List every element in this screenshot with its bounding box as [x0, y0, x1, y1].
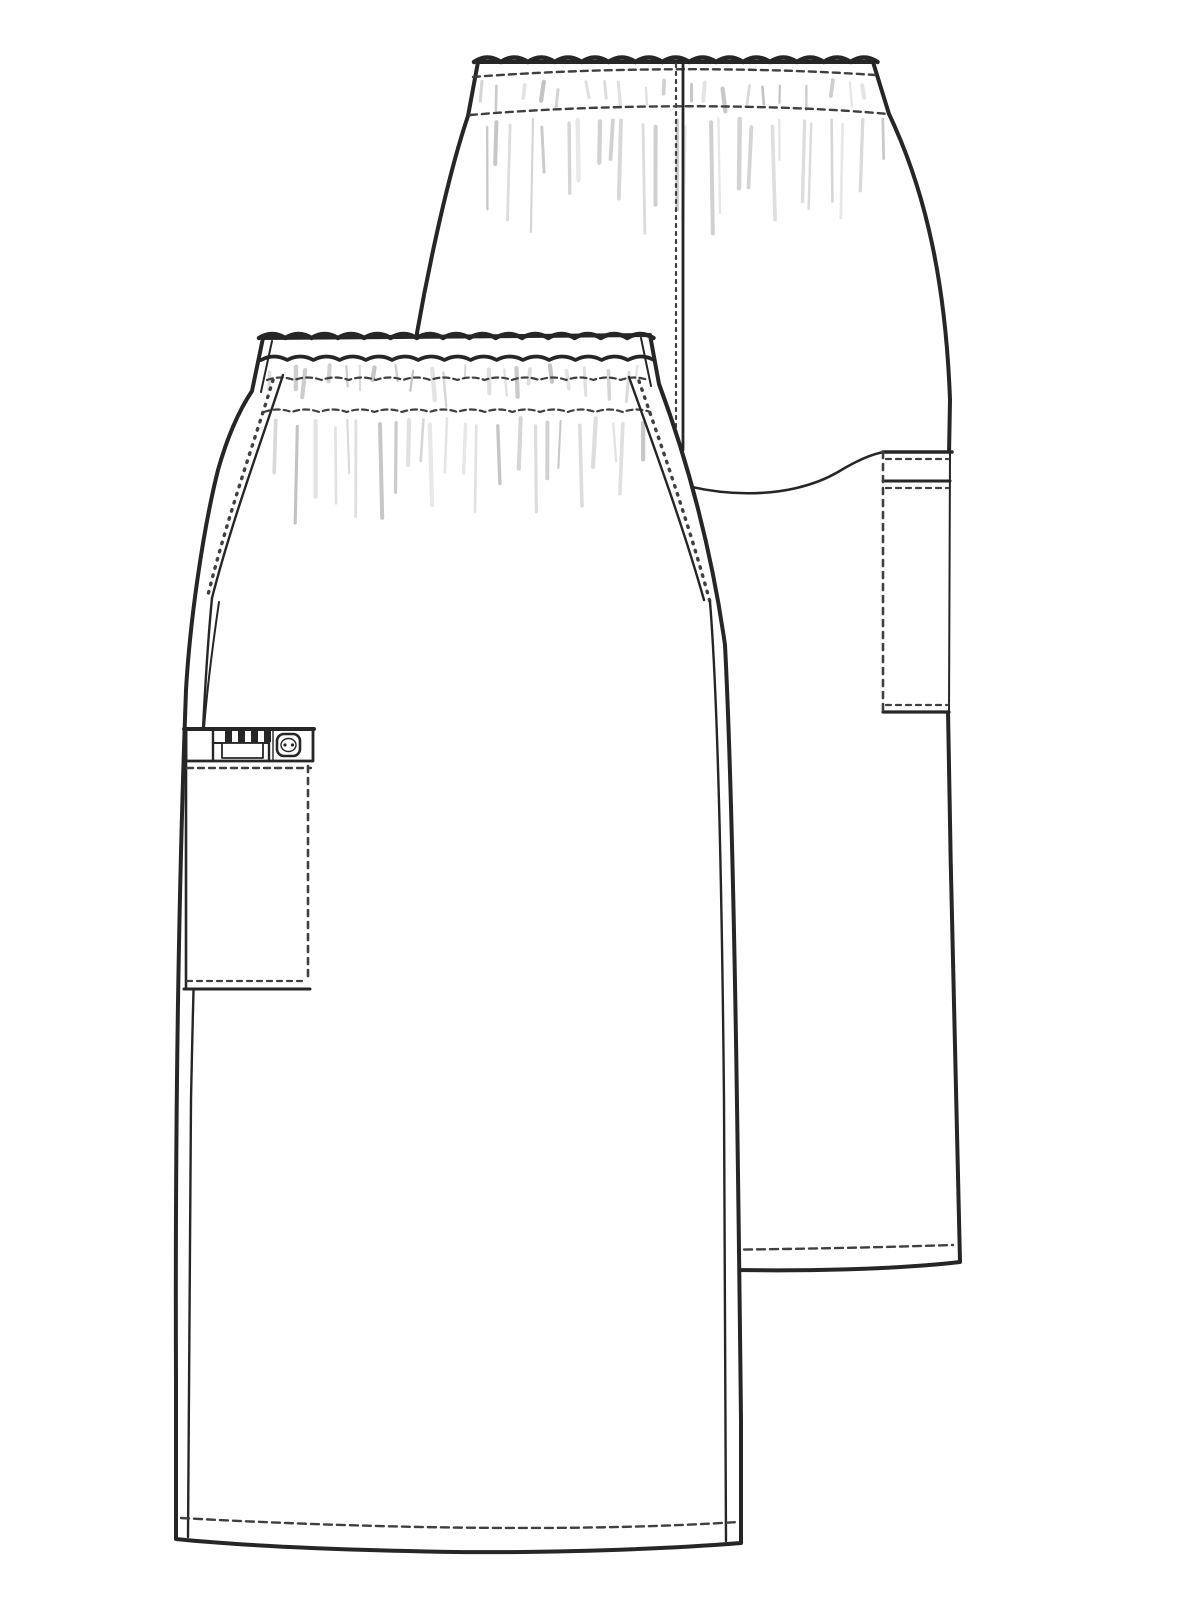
gather-shade-line	[529, 369, 531, 384]
gather-shade-line	[519, 418, 521, 469]
gather-shade-line	[475, 426, 476, 512]
gather-shade-line	[703, 83, 705, 101]
gather-shade-line	[832, 120, 833, 201]
gather-shade-line	[608, 371, 609, 399]
gather-shade-line	[569, 123, 570, 193]
gather-shade-line	[611, 120, 613, 159]
gather-shade-line	[711, 122, 713, 233]
gather-shade-line	[373, 368, 375, 381]
gather-shade-line	[465, 365, 466, 378]
gather-shade-line	[295, 426, 297, 523]
gather-shade-line	[498, 426, 500, 484]
gather-shade-line	[517, 368, 518, 397]
gather-shade-line	[580, 425, 582, 506]
gather-shade-line	[862, 85, 864, 97]
gather-shade-line	[335, 428, 336, 504]
gather-shade-line	[578, 120, 579, 180]
pocket-button	[277, 734, 300, 756]
gather-shade-line	[739, 119, 740, 188]
front-view	[176, 334, 741, 1552]
gather-shade-line	[496, 86, 497, 110]
gather-shade-line	[302, 370, 305, 397]
gather-shade-line	[464, 424, 466, 473]
gather-shade-line	[762, 87, 764, 105]
gather-shade-line	[841, 124, 843, 218]
pencil-slot-tick	[225, 731, 232, 742]
gather-shade-line	[646, 88, 647, 106]
gather-shade-line	[556, 90, 558, 108]
gather-shade-line	[593, 418, 596, 467]
button-hole	[283, 743, 286, 746]
sketch-page	[0, 0, 1200, 1600]
gather-shade-line	[432, 369, 435, 400]
gather-shade-line	[346, 366, 347, 386]
gather-shade-line	[408, 420, 409, 465]
pencil-slot-panel	[222, 743, 263, 758]
gather-shade-line	[489, 369, 490, 393]
gather-shade-line	[723, 89, 726, 112]
gather-shade-line	[430, 425, 432, 506]
gather-shade-line	[523, 85, 525, 98]
front-cargo-pocket	[184, 729, 314, 989]
gather-shade-line	[883, 119, 884, 158]
gather-shade-line	[803, 121, 805, 201]
gather-shade-line	[541, 82, 544, 101]
gather-shade-line	[480, 81, 482, 101]
gather-shade-line	[599, 121, 600, 162]
pencil-slot-tick	[251, 731, 258, 742]
gather-shade-line	[605, 82, 607, 99]
back-pocket-fill	[883, 452, 949, 712]
gather-shade-line	[396, 423, 397, 493]
gather-shade-line	[831, 80, 833, 96]
pencil-slot-tick	[238, 731, 245, 742]
back-cargo-pocket	[883, 452, 952, 712]
gather-shade-line	[664, 81, 665, 94]
gather-shade-line	[643, 125, 645, 234]
gather-shade-line	[380, 424, 382, 518]
gather-shade-line	[584, 368, 586, 395]
gather-shade-line	[718, 119, 720, 214]
flat-sketch	[0, 0, 1200, 1600]
gather-shade-line	[619, 120, 621, 198]
gather-shade-line	[274, 421, 276, 473]
gather-shade-line	[550, 365, 552, 381]
button-hole	[291, 743, 294, 746]
gather-shade-line	[495, 122, 496, 164]
gather-shade-line	[536, 426, 537, 512]
